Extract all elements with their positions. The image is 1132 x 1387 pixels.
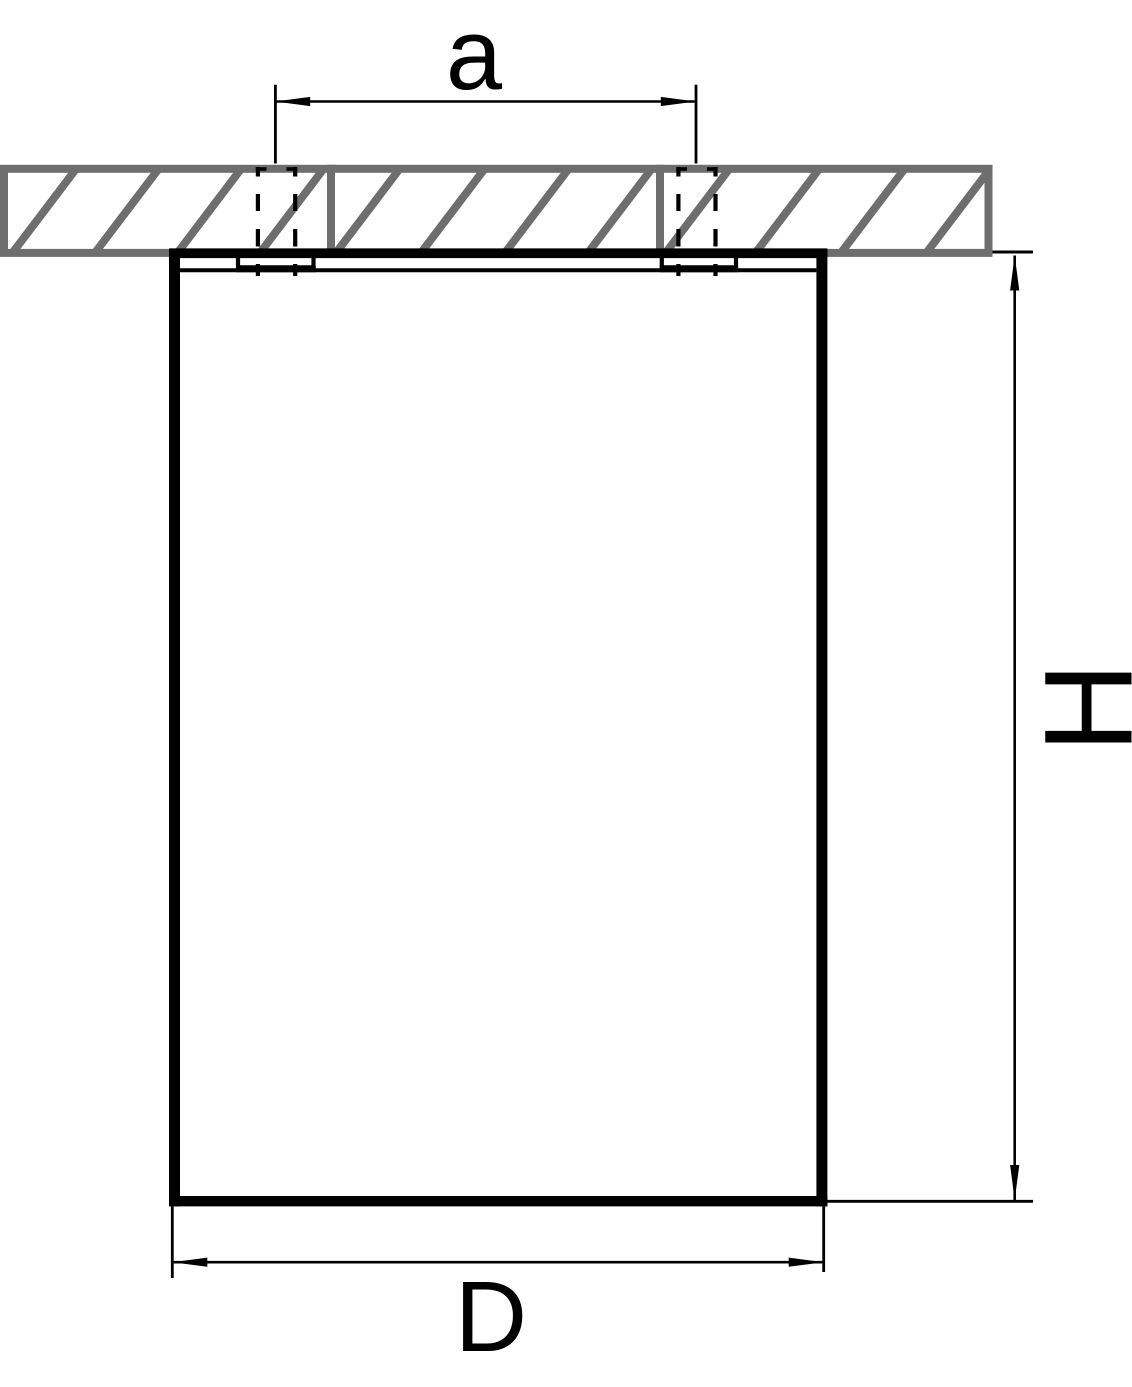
svg-text:H: H [1020,662,1132,752]
svg-text:a: a [446,0,503,111]
svg-text:D: D [455,1261,527,1373]
